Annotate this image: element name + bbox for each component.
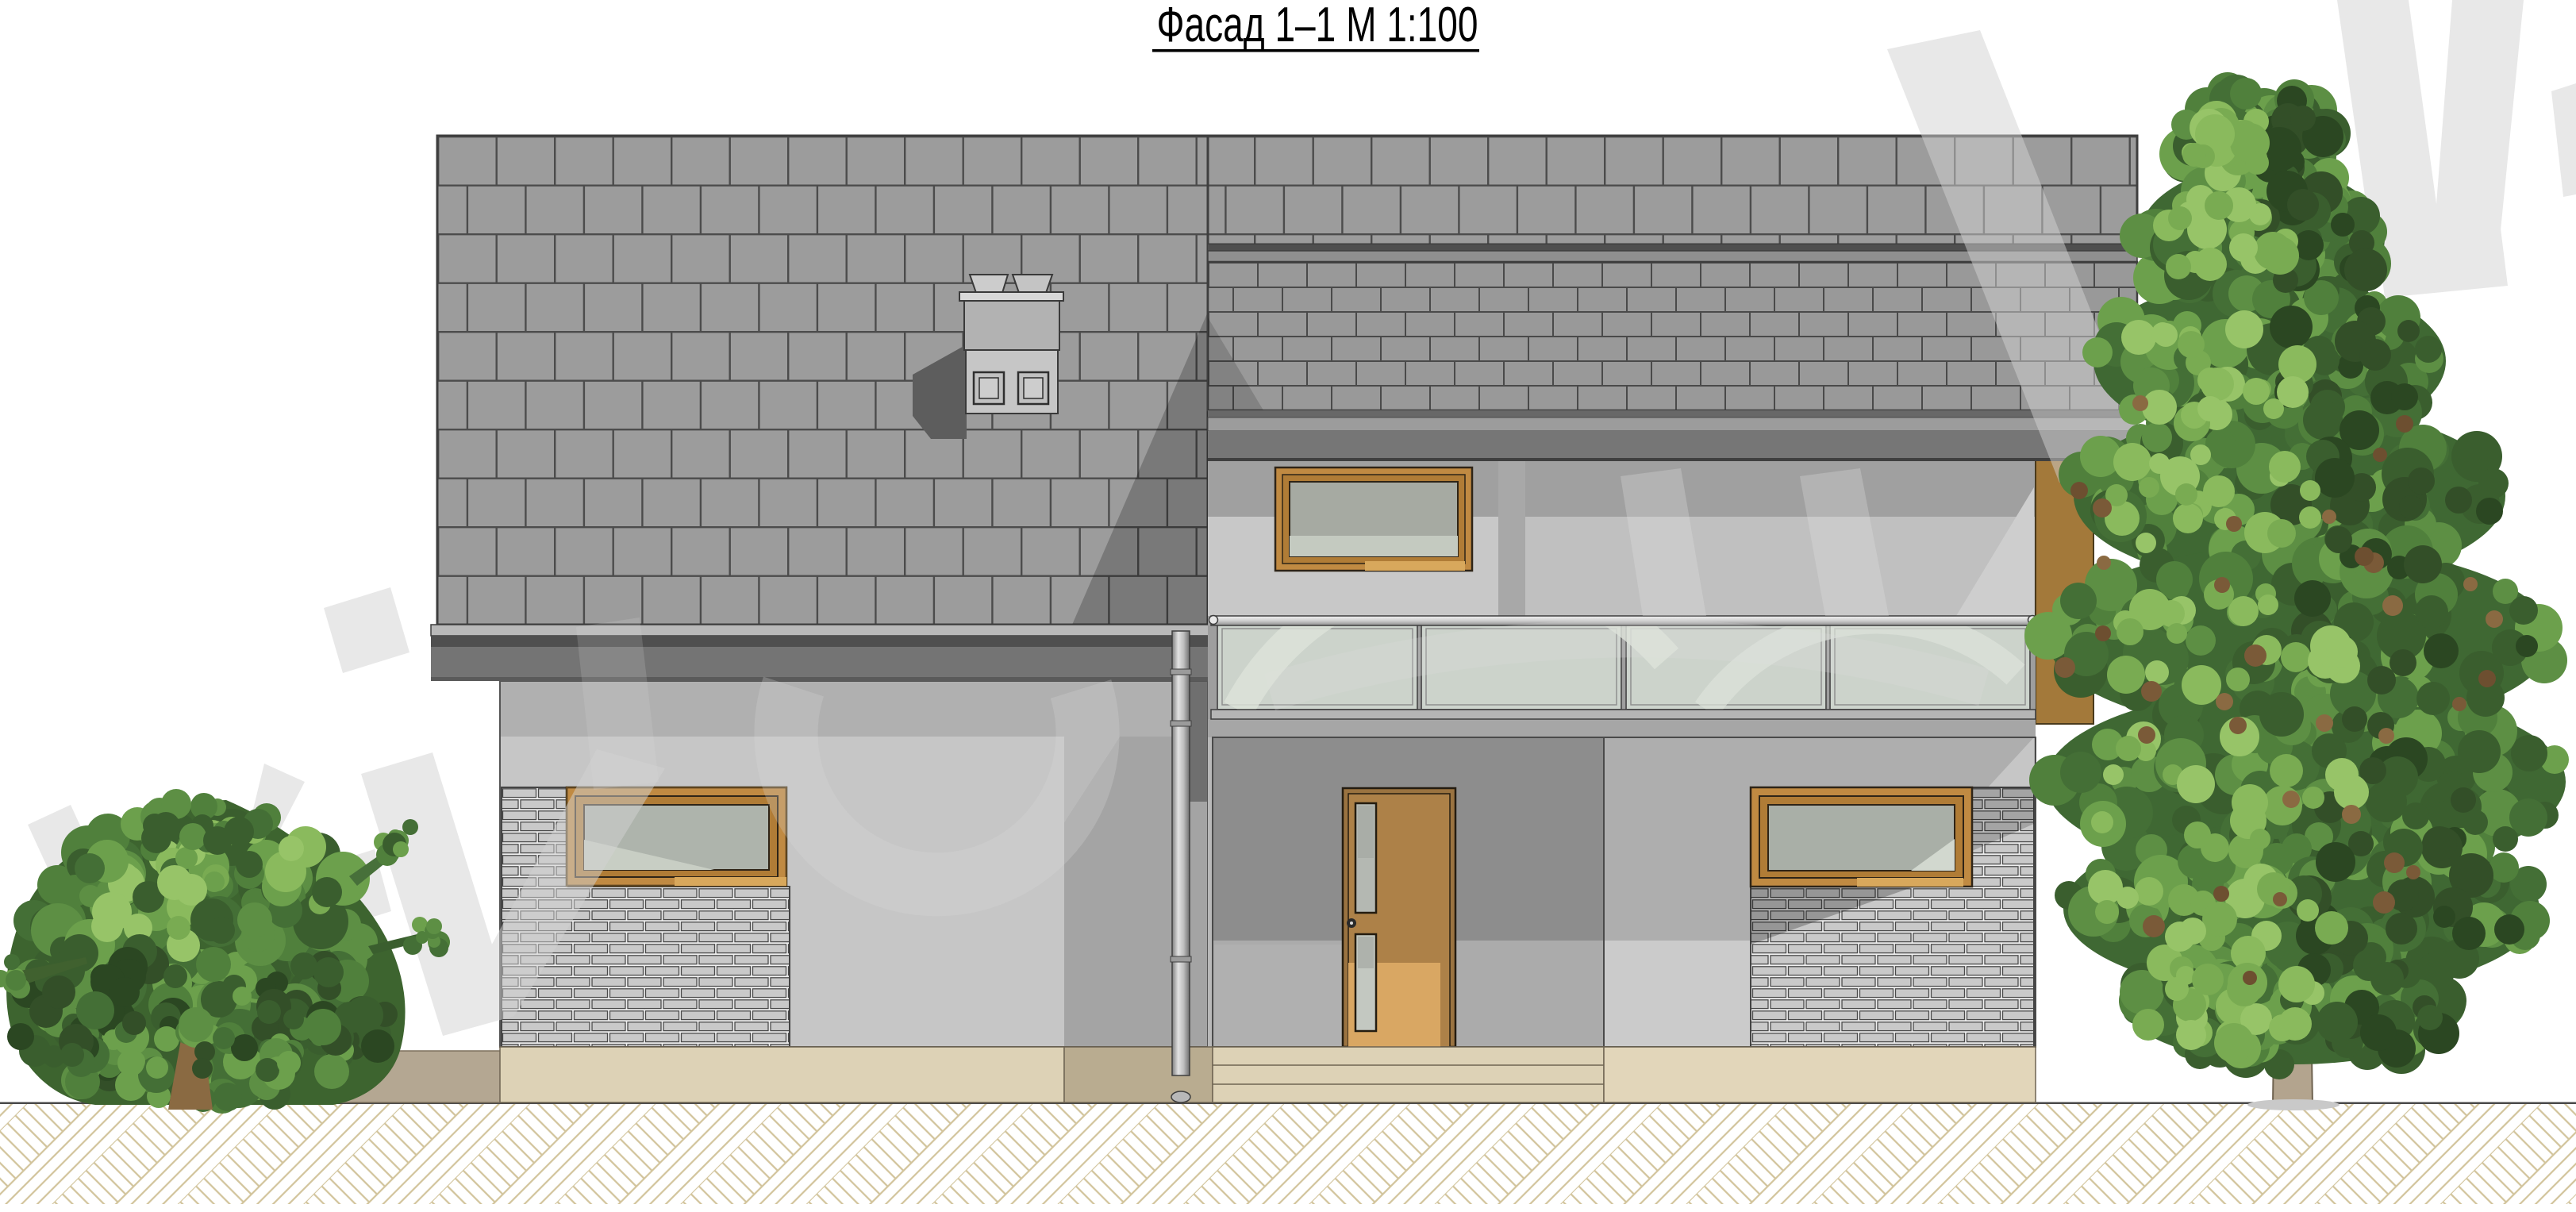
svg-text:Фасад 1–1 М 1:100: Фасад 1–1 М 1:100 [1157, 0, 1478, 52]
